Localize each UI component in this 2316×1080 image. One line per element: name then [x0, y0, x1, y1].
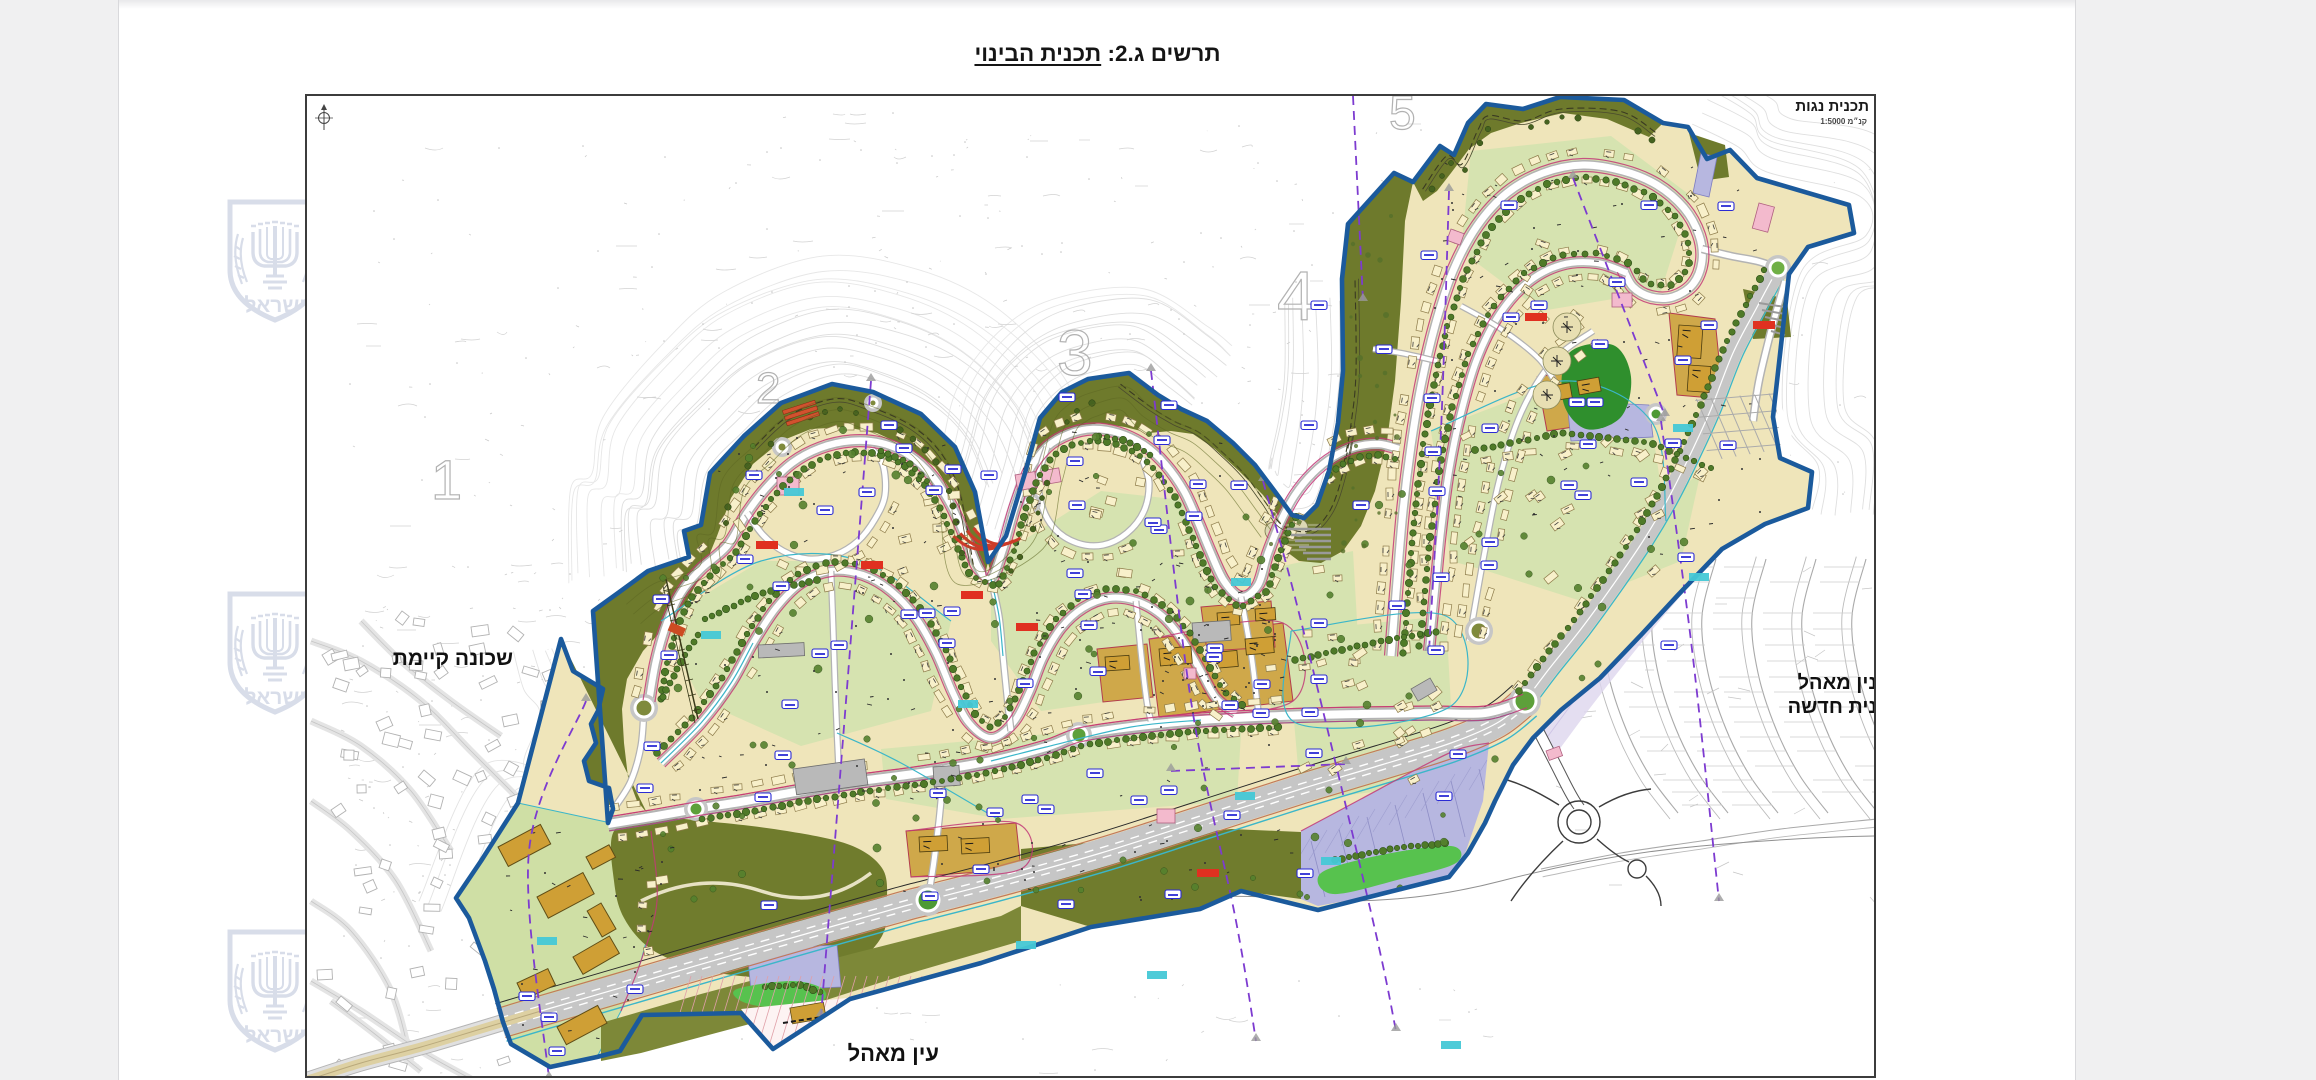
svg-text:עין מאהל: עין מאהל [848, 1041, 939, 1066]
svg-text:נית חדשה: נית חדשה [1788, 696, 1876, 718]
svg-text:שכונה קיימת: שכונה קיימת [393, 647, 513, 670]
svg-text:ישראל: ישראל [244, 1024, 305, 1047]
svg-text:קנ״מ 1:5000: קנ״מ 1:5000 [1820, 117, 1867, 126]
svg-text:תכנית נגות: תכנית נגות [1795, 98, 1869, 115]
svg-text:5: 5 [1389, 96, 1416, 140]
svg-text:1: 1 [431, 448, 462, 511]
svg-text:ישראל: ישראל [244, 294, 305, 317]
svg-text:נין מאהל: נין מאהל [1798, 672, 1876, 694]
svg-text:4: 4 [1277, 257, 1316, 335]
svg-text:ישראל: ישראל [244, 686, 305, 709]
